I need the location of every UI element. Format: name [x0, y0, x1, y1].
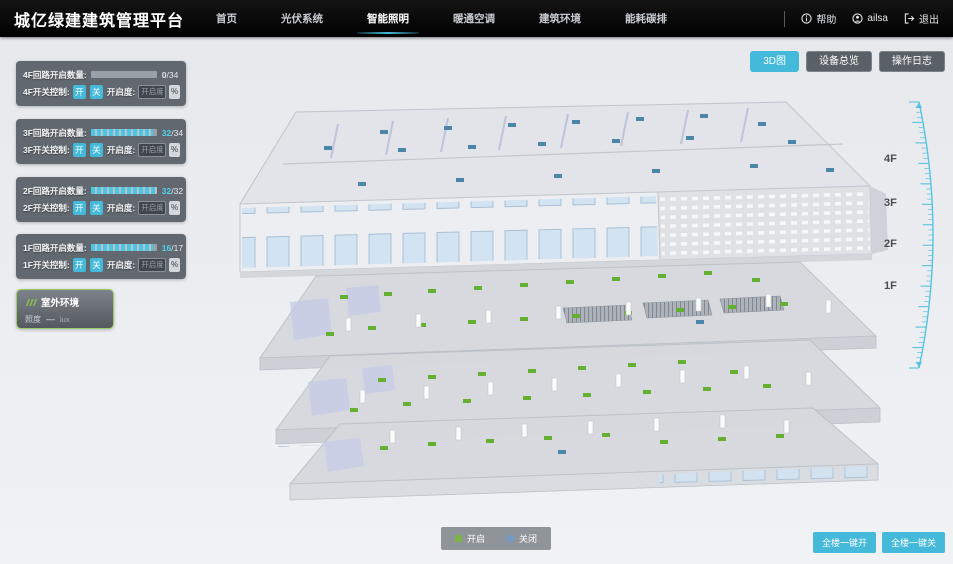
- light-marker-on[interactable]: [326, 332, 334, 336]
- switch-on-button[interactable]: 开: [73, 201, 86, 215]
- building-column: [346, 318, 351, 331]
- logout-button[interactable]: 退出: [904, 11, 939, 26]
- user-area: 帮助 ailsa 退出: [784, 11, 953, 27]
- building-column: [806, 372, 811, 385]
- light-marker-on[interactable]: [468, 320, 476, 324]
- circuit-count-label: 4F回路开启数量:: [23, 69, 87, 81]
- circuit-count-label: 3F回路开启数量:: [23, 127, 87, 139]
- light-marker-on[interactable]: [428, 289, 436, 293]
- light-marker-off[interactable]: [826, 168, 834, 172]
- bulk-actions: 全楼一键开 全楼一键关: [813, 532, 945, 553]
- floor-scale-ruler[interactable]: [903, 96, 949, 380]
- light-marker-off[interactable]: [380, 130, 388, 134]
- building-column: [766, 294, 771, 307]
- dim-apply-button[interactable]: %: [169, 143, 180, 157]
- light-marker-on[interactable]: [730, 370, 738, 374]
- illuminance-value: —: [46, 314, 55, 324]
- light-marker-off[interactable]: [558, 450, 566, 454]
- light-marker-on[interactable]: [378, 378, 386, 382]
- light-marker-off[interactable]: [750, 164, 758, 168]
- dim-label: 开启度:: [107, 259, 135, 271]
- floor-label-2f: 2F: [884, 238, 897, 250]
- circuit-count-value: 32/32: [162, 186, 183, 196]
- light-marker-on[interactable]: [428, 442, 436, 446]
- light-marker-on[interactable]: [428, 375, 436, 379]
- building-3d-view[interactable]: [228, 90, 908, 502]
- help-icon: [801, 13, 812, 24]
- building-column: [556, 306, 561, 319]
- light-marker-on[interactable]: [612, 277, 620, 281]
- outdoor-env-icon: [25, 298, 37, 307]
- legend-item-on: 开启: [455, 532, 485, 545]
- all-on-button[interactable]: 全楼一键开: [813, 532, 876, 553]
- floor-panel-2f: 2F回路开启数量: 32/32 2F开关控制: 开 关 开启度: %: [16, 177, 186, 222]
- building-column: [486, 310, 491, 323]
- light-marker-on[interactable]: [643, 390, 651, 394]
- help-button[interactable]: 帮助: [801, 11, 836, 26]
- circuit-count-label: 2F回路开启数量:: [23, 185, 87, 197]
- light-marker-on[interactable]: [520, 283, 528, 287]
- light-marker-on[interactable]: [403, 402, 411, 406]
- light-marker-on[interactable]: [566, 280, 574, 284]
- app-root: 城亿绿建建筑管理平台 首页 光伏系统 智能照明 暖通空调 建筑环境 能耗碳排 帮…: [0, 0, 953, 564]
- switch-off-button[interactable]: 关: [90, 85, 103, 99]
- light-marker-on[interactable]: [486, 439, 494, 443]
- switch-off-button[interactable]: 关: [90, 143, 103, 157]
- building-column: [588, 421, 593, 434]
- top-bar: 城亿绿建建筑管理平台 首页 光伏系统 智能照明 暖通空调 建筑环境 能耗碳排 帮…: [0, 0, 953, 37]
- dim-apply-button[interactable]: %: [169, 201, 180, 215]
- floor-label-4f: 4F: [884, 153, 897, 165]
- legend-off-swatch: [507, 535, 514, 542]
- light-marker-on[interactable]: [578, 366, 586, 370]
- dim-input[interactable]: [138, 201, 166, 215]
- view-switcher: 3D图 设备总览 操作日志: [750, 51, 945, 72]
- user-icon: [852, 13, 863, 24]
- building-column: [626, 302, 631, 315]
- dim-label: 开启度:: [107, 144, 135, 156]
- light-marker-off[interactable]: [788, 140, 796, 144]
- circuit-count-value: 32/34: [162, 128, 183, 138]
- building-column: [456, 427, 461, 440]
- light-marker-on[interactable]: [602, 433, 610, 437]
- light-marker-on[interactable]: [763, 384, 771, 388]
- light-marker-on[interactable]: [780, 302, 788, 306]
- switch-off-button[interactable]: 关: [90, 201, 103, 215]
- username: ailsa: [867, 13, 888, 24]
- switch-control-label: 1F开关控制:: [23, 259, 70, 271]
- floor-label-3f: 3F: [884, 197, 897, 209]
- main-nav: 首页 光伏系统 智能照明 暖通空调 建筑环境 能耗碳排: [214, 5, 669, 32]
- light-marker-on[interactable]: [368, 326, 376, 330]
- light-marker-on[interactable]: [718, 437, 726, 441]
- switch-on-button[interactable]: 开: [73, 143, 86, 157]
- light-marker-on[interactable]: [704, 271, 712, 275]
- light-marker-on[interactable]: [340, 295, 348, 299]
- light-marker-on[interactable]: [350, 408, 358, 412]
- building-column: [522, 424, 527, 437]
- light-marker-off[interactable]: [572, 120, 580, 124]
- window-band: [242, 196, 658, 268]
- user-menu[interactable]: ailsa: [852, 13, 888, 24]
- building-column: [744, 366, 749, 379]
- light-marker-on[interactable]: [520, 317, 528, 321]
- floor-panel-1f: 1F回路开启数量: 16/17 1F开关控制: 开 关 开启度: %: [16, 234, 186, 279]
- light-marker-off[interactable]: [686, 136, 694, 140]
- light-marker-on[interactable]: [384, 292, 392, 296]
- light-marker-off[interactable]: [758, 122, 766, 126]
- light-marker-off[interactable]: [538, 142, 546, 146]
- dim-input[interactable]: [138, 85, 166, 99]
- building-column: [696, 298, 701, 311]
- light-marker-on[interactable]: [380, 446, 388, 450]
- switch-on-button[interactable]: 开: [73, 258, 86, 272]
- light-marker-off[interactable]: [324, 146, 332, 150]
- dim-input[interactable]: [138, 258, 166, 272]
- status-legend: 开启 关闭: [441, 527, 551, 550]
- light-marker-on[interactable]: [678, 360, 686, 364]
- light-marker-on[interactable]: [752, 278, 760, 282]
- building-floor-4f[interactable]: [240, 102, 888, 278]
- nav-item-hvac[interactable]: 暖通空调: [451, 5, 497, 32]
- illuminance-unit: lux: [60, 315, 70, 324]
- light-marker-on[interactable]: [676, 308, 684, 312]
- light-marker-off[interactable]: [696, 320, 704, 324]
- light-marker-on[interactable]: [776, 434, 784, 438]
- legend-item-off: 关闭: [507, 532, 537, 545]
- circuit-count-value: 16/17: [162, 243, 183, 253]
- light-marker-off[interactable]: [456, 178, 464, 182]
- logout-icon: [904, 13, 915, 24]
- all-off-button[interactable]: 全楼一键关: [882, 532, 945, 553]
- perforated-panel: [660, 189, 870, 257]
- light-marker-off[interactable]: [652, 169, 660, 173]
- light-marker-on[interactable]: [583, 393, 591, 397]
- nav-item-building-env[interactable]: 建筑环境: [537, 5, 583, 32]
- light-marker-on[interactable]: [658, 274, 666, 278]
- outdoor-env-panel: 室外环境 照度 — lux: [16, 289, 114, 329]
- light-marker-off[interactable]: [700, 114, 708, 118]
- light-marker-on[interactable]: [660, 440, 668, 444]
- switch-off-button[interactable]: 关: [90, 258, 103, 272]
- building-column: [552, 378, 557, 391]
- device-overview-button[interactable]: 设备总览: [806, 51, 872, 72]
- switch-control-label: 3F开关控制:: [23, 144, 70, 156]
- light-marker-off[interactable]: [398, 148, 406, 152]
- switch-control-label: 4F开关控制:: [23, 86, 70, 98]
- light-marker-on[interactable]: [628, 363, 636, 367]
- building-column: [720, 415, 725, 428]
- switch-on-button[interactable]: 开: [73, 85, 86, 99]
- building-column: [488, 382, 493, 395]
- circuit-progress-bar: [91, 244, 157, 251]
- nav-item-home[interactable]: 首页: [214, 5, 239, 32]
- nav-item-smart-lighting[interactable]: 智能照明: [365, 5, 411, 32]
- floor-label-1f: 1F: [884, 280, 897, 292]
- light-marker-on[interactable]: [478, 372, 486, 376]
- light-marker-off[interactable]: [358, 182, 366, 186]
- floor-panel-4f: 4F回路开启数量: 0/34 4F开关控制: 开 关 开启度: %: [16, 61, 186, 106]
- interior-partitions: [324, 438, 364, 472]
- dim-apply-button[interactable]: %: [169, 258, 180, 272]
- switch-control-label: 2F开关控制:: [23, 202, 70, 214]
- light-marker-on[interactable]: [528, 369, 536, 373]
- nav-item-energy-carbon[interactable]: 能耗碳排: [623, 5, 669, 32]
- light-marker-on[interactable]: [572, 314, 580, 318]
- dim-input[interactable]: [138, 143, 166, 157]
- building-column: [654, 418, 659, 431]
- floor-panel-3f: 3F回路开启数量: 32/34 3F开关控制: 开 关 开启度: %: [16, 119, 186, 164]
- light-marker-on[interactable]: [523, 396, 531, 400]
- outdoor-env-title: 室外环境: [41, 295, 79, 309]
- light-marker-on[interactable]: [474, 286, 482, 290]
- building-column: [360, 390, 365, 403]
- building-column: [390, 430, 395, 443]
- light-marker-off[interactable]: [636, 117, 644, 121]
- circuit-count-label: 1F回路开启数量:: [23, 242, 87, 254]
- circuit-progress-bar: [91, 71, 157, 78]
- light-marker-on[interactable]: [728, 305, 736, 309]
- building-column: [616, 374, 621, 387]
- light-marker-off[interactable]: [554, 174, 562, 178]
- light-marker-off[interactable]: [508, 123, 516, 127]
- light-marker-on[interactable]: [463, 399, 471, 403]
- light-marker-off[interactable]: [468, 145, 476, 149]
- dim-apply-button[interactable]: %: [169, 85, 180, 99]
- view-3d-button[interactable]: 3D图: [750, 51, 799, 72]
- light-marker-off[interactable]: [444, 126, 452, 130]
- building-column: [784, 420, 789, 433]
- divider: [784, 11, 785, 27]
- main-canvas: 4F回路开启数量: 0/34 4F开关控制: 开 关 开启度: % 3F回路开启…: [0, 37, 953, 564]
- dim-label: 开启度:: [107, 202, 135, 214]
- circuit-progress-bar: [91, 129, 157, 136]
- light-marker-on[interactable]: [703, 387, 711, 391]
- app-title: 城亿绿建建筑管理平台: [0, 7, 184, 31]
- circuit-count-value: 0/34: [162, 70, 179, 80]
- illuminance-label: 照度: [25, 314, 41, 325]
- nav-item-pv-system[interactable]: 光伏系统: [279, 5, 325, 32]
- building-column: [416, 314, 421, 327]
- building-column: [424, 386, 429, 399]
- building-column: [826, 300, 831, 313]
- light-marker-on[interactable]: [544, 436, 552, 440]
- building-column: [680, 370, 685, 383]
- dim-label: 开启度:: [107, 86, 135, 98]
- operation-log-button[interactable]: 操作日志: [879, 51, 945, 72]
- legend-on-swatch: [455, 535, 462, 542]
- circuit-progress-bar: [91, 187, 157, 194]
- light-marker-off[interactable]: [612, 139, 620, 143]
